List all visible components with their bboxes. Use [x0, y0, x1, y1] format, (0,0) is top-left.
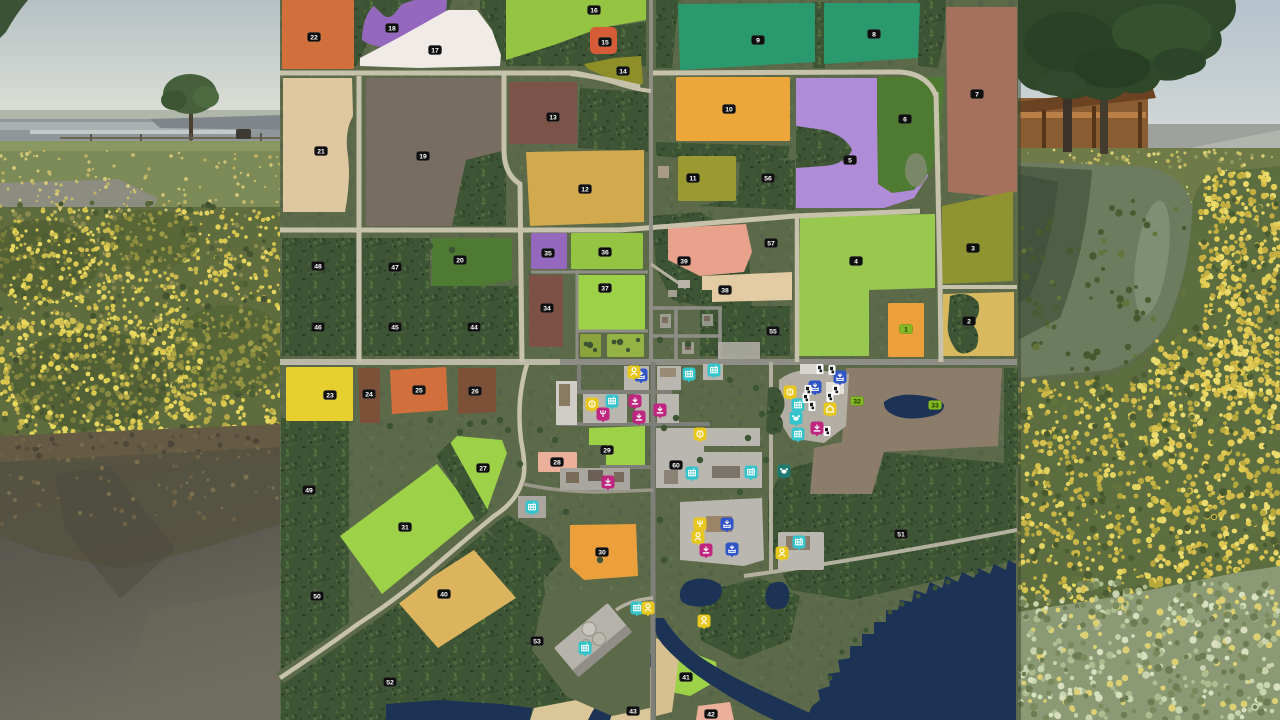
- svg-text:3: 3: [971, 245, 975, 252]
- svg-text:48: 48: [314, 263, 322, 270]
- svg-text:21: 21: [317, 148, 325, 155]
- svg-text:40: 40: [440, 591, 448, 598]
- svg-text:47: 47: [391, 264, 399, 271]
- svg-text:14: 14: [619, 68, 627, 75]
- svg-text:38: 38: [721, 287, 729, 294]
- svg-text:56: 56: [764, 175, 772, 182]
- svg-text:4: 4: [854, 258, 858, 265]
- svg-text:27: 27: [479, 465, 487, 472]
- svg-text:18: 18: [388, 25, 396, 32]
- svg-text:44: 44: [470, 324, 478, 331]
- svg-text:8: 8: [872, 31, 876, 38]
- svg-text:12: 12: [581, 186, 589, 193]
- svg-text:37: 37: [601, 285, 609, 292]
- svg-text:13: 13: [549, 114, 557, 121]
- svg-text:35: 35: [544, 250, 552, 257]
- svg-text:31: 31: [401, 524, 409, 531]
- svg-text:46: 46: [314, 324, 322, 331]
- svg-text:39: 39: [680, 258, 688, 265]
- svg-text:20: 20: [456, 257, 464, 264]
- svg-text:49: 49: [305, 487, 313, 494]
- svg-text:50: 50: [313, 593, 321, 600]
- svg-text:28: 28: [553, 459, 561, 466]
- svg-text:55: 55: [769, 328, 777, 335]
- svg-text:2: 2: [967, 318, 971, 325]
- svg-text:11: 11: [689, 175, 696, 182]
- svg-text:41: 41: [682, 674, 690, 681]
- svg-text:5: 5: [848, 157, 852, 164]
- svg-text:7: 7: [975, 91, 979, 98]
- svg-text:53: 53: [533, 638, 541, 645]
- svg-text:29: 29: [603, 447, 611, 454]
- svg-text:32: 32: [853, 398, 861, 405]
- svg-text:6: 6: [903, 116, 907, 123]
- svg-text:51: 51: [897, 531, 905, 538]
- svg-text:17: 17: [431, 47, 439, 54]
- svg-text:45: 45: [391, 324, 399, 331]
- svg-text:10: 10: [725, 106, 733, 113]
- svg-text:22: 22: [310, 34, 318, 41]
- svg-text:30: 30: [598, 549, 606, 556]
- svg-text:42: 42: [707, 711, 715, 718]
- svg-text:9: 9: [756, 37, 760, 44]
- svg-text:52: 52: [386, 679, 394, 686]
- svg-text:15: 15: [601, 39, 609, 46]
- svg-text:24: 24: [365, 391, 373, 398]
- svg-text:43: 43: [629, 708, 637, 715]
- svg-text:16: 16: [590, 7, 598, 14]
- svg-text:60: 60: [672, 462, 680, 469]
- svg-text:57: 57: [767, 240, 775, 247]
- svg-text:33: 33: [931, 402, 939, 409]
- svg-text:23: 23: [326, 392, 334, 399]
- svg-text:25: 25: [415, 387, 423, 394]
- svg-text:19: 19: [419, 153, 427, 160]
- svg-text:34: 34: [543, 305, 551, 312]
- svg-text:36: 36: [601, 249, 609, 256]
- svg-text:26: 26: [471, 388, 479, 395]
- svg-text:1: 1: [904, 326, 908, 333]
